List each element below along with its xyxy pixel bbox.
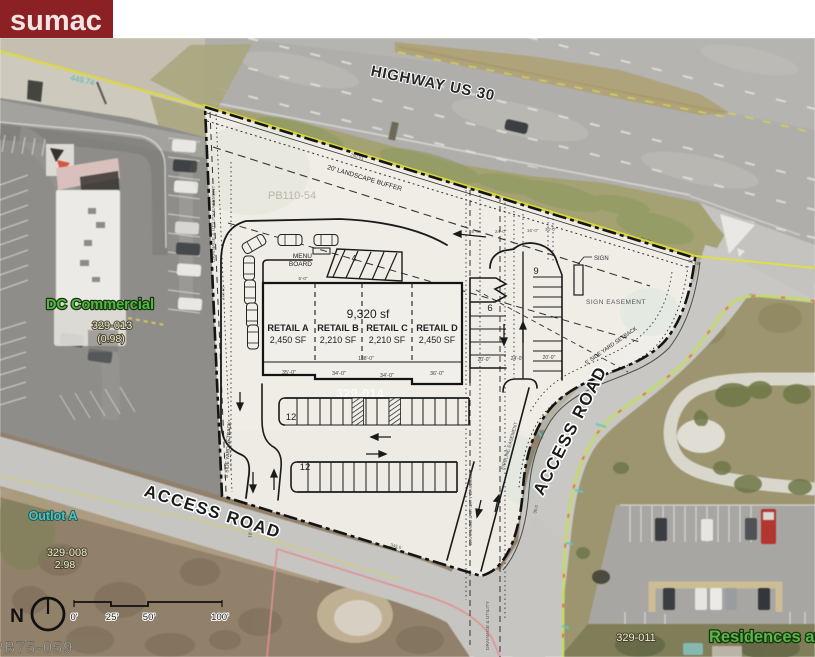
svg-text:RETAIL B: RETAIL B — [317, 323, 359, 333]
svg-text:15'-0": 15'-0" — [527, 228, 539, 233]
svg-text:100': 100' — [211, 612, 229, 623]
svg-text:329-008: 329-008 — [47, 547, 87, 559]
svg-text:PB75-059: PB75-059 — [0, 639, 73, 657]
svg-text:SIGN EASEMENT: SIGN EASEMENT — [586, 299, 646, 306]
svg-text:2.98: 2.98 — [55, 559, 76, 571]
svg-text:DRAINAGE & UTILITY: DRAINAGE & UTILITY — [485, 600, 491, 650]
svg-text:329-011: 329-011 — [616, 632, 656, 644]
svg-text:SIGN: SIGN — [594, 256, 609, 262]
svg-text:DRAINAGE & UTILITY EASEMENT: DRAINAGE & UTILITY EASEMENT — [468, 469, 474, 545]
svg-text:2,450 SF: 2,450 SF — [419, 335, 456, 345]
svg-text:PB110-54: PB110-54 — [268, 190, 316, 202]
svg-text:N: N — [10, 606, 24, 627]
svg-text:MENU: MENU — [293, 253, 312, 260]
svg-text:DC Commercial: DC Commercial — [46, 297, 154, 313]
svg-text:24'-0": 24'-0" — [511, 356, 524, 362]
svg-text:34'-0": 34'-0" — [332, 371, 346, 377]
svg-text:20'-0": 20'-0" — [478, 357, 491, 363]
svg-text:16'-0": 16'-0" — [469, 229, 481, 234]
svg-text:50': 50' — [143, 612, 156, 623]
svg-text:Residences at: Residences at — [709, 628, 815, 646]
svg-text:30'-0": 30'-0" — [545, 227, 557, 232]
svg-text:9,320 sf: 9,320 sf — [347, 307, 390, 321]
svg-text:RETAIL C: RETAIL C — [366, 323, 408, 333]
svg-text:138'-0": 138'-0" — [358, 356, 374, 362]
svg-text:Outlot A: Outlot A — [29, 509, 78, 523]
svg-text:36'-0": 36'-0" — [430, 371, 444, 377]
svg-text:12: 12 — [300, 462, 311, 473]
svg-text:215.65: 215.65 — [220, 286, 225, 300]
svg-text:RETAIL A: RETAIL A — [267, 323, 309, 333]
svg-text:sumac: sumac — [10, 5, 102, 37]
svg-text:24'-0": 24'-0" — [495, 229, 507, 234]
svg-text:329-013: 329-013 — [92, 320, 132, 332]
svg-text:RETAIL D: RETAIL D — [416, 323, 458, 333]
svg-text:2,450 SF: 2,450 SF — [270, 335, 307, 345]
svg-text:BOARD: BOARD — [289, 261, 312, 268]
svg-text:12: 12 — [286, 412, 297, 423]
svg-text:5'-0": 5'-0" — [299, 276, 308, 281]
svg-text:2,210 SF: 2,210 SF — [320, 335, 357, 345]
svg-text:(0.98): (0.98) — [97, 333, 124, 345]
svg-text:0': 0' — [70, 612, 77, 623]
svg-text:2,210 SF: 2,210 SF — [369, 335, 406, 345]
svg-text:6: 6 — [487, 303, 492, 314]
svg-text:20'-0": 20'-0" — [543, 355, 556, 361]
svg-text:35'-0": 35'-0" — [282, 370, 296, 376]
svg-text:9: 9 — [533, 266, 538, 277]
svg-text:4: 4 — [352, 253, 357, 263]
svg-text:34'-0": 34'-0" — [380, 373, 394, 379]
svg-text:25': 25' — [106, 612, 119, 623]
